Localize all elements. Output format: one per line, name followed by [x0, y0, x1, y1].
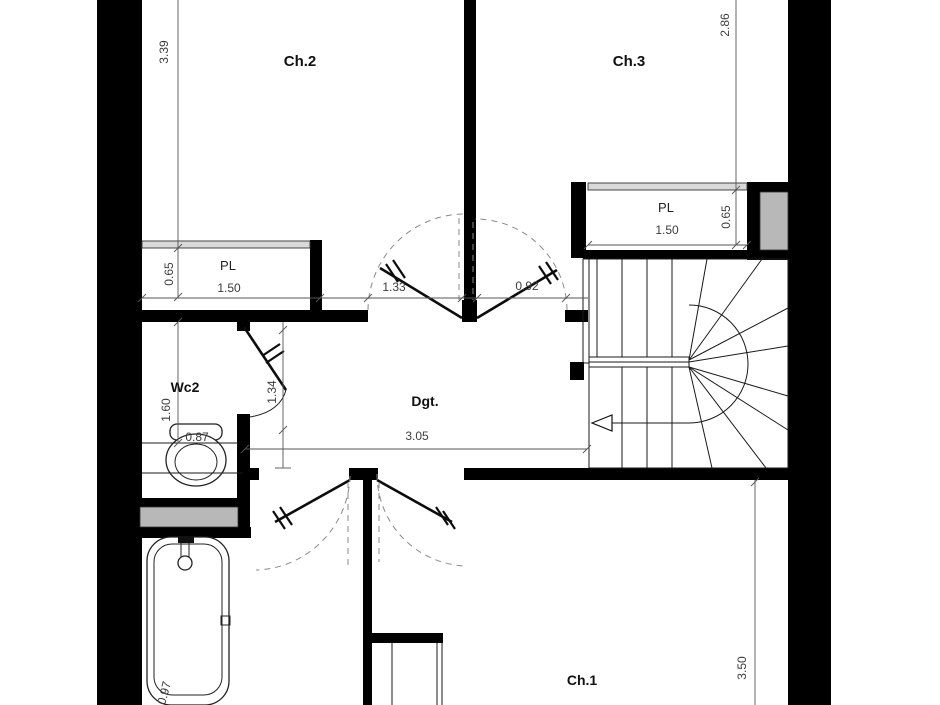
bath-vanity-counter	[140, 507, 238, 527]
floor-plan-svg: Ch.2 Ch.3 Wc2 Dgt. Ch.1 PL PL 3.39 2.86 …	[0, 0, 940, 705]
wall-pl-left-post	[310, 240, 322, 322]
dim-pl-right-width: 1.50	[655, 223, 679, 237]
pl-left-front-panel	[142, 241, 310, 248]
wall-ch1-north	[464, 468, 788, 480]
door-ch2	[368, 214, 465, 318]
label-pl-left: PL	[220, 258, 236, 273]
dim-pl-left-width: 1.50	[217, 281, 241, 295]
dim-ch1-height: 3.50	[735, 656, 749, 680]
wall-right-exterior	[788, 0, 831, 705]
label-ch3: Ch.3	[613, 53, 646, 70]
staircase	[583, 259, 788, 468]
stair-direction-arrow	[592, 415, 612, 431]
door-swing-arc	[256, 476, 350, 570]
stair-winder	[689, 346, 788, 362]
dim-wc2-width: 0.87	[185, 430, 209, 444]
bathtub-faucet-base	[178, 536, 194, 543]
wall-stair-west-block	[570, 362, 584, 380]
dim-pl-left-depth: 0.65	[162, 262, 176, 286]
wall-hall-north	[142, 310, 368, 322]
dim-hall-width: 3.05	[405, 429, 429, 443]
pl-right-front-panel	[588, 183, 747, 190]
stair-winder	[689, 367, 788, 396]
stair-winder	[689, 259, 762, 360]
wall-top-door-post	[462, 300, 477, 322]
wall-bath-ch1-divider	[363, 478, 372, 705]
door-leaf	[477, 270, 557, 318]
wall-shaft-top	[755, 182, 788, 192]
stair-winder	[689, 308, 788, 360]
wall-ch2-ch3-divider	[464, 0, 476, 310]
stair-winder	[689, 367, 788, 430]
dim-ch3-height: 2.86	[718, 13, 732, 37]
label-wc2: Wc2	[171, 379, 200, 395]
floor-plan-page: Ch.2 Ch.3 Wc2 Dgt. Ch.1 PL PL 3.39 2.86 …	[0, 0, 940, 705]
dim-door-ch2: 1.33	[382, 280, 406, 294]
door-ch1	[377, 474, 466, 566]
dim-pl-right-depth: 0.65	[719, 205, 733, 229]
dimension-lines	[138, 0, 759, 705]
door-swing-arc	[475, 219, 567, 310]
wall-vanity-top	[140, 498, 244, 507]
bathtub-drain	[178, 556, 192, 570]
dim-wc2-length: 1.60	[159, 398, 173, 422]
label-pl-right: PL	[658, 200, 674, 215]
dimension-labels: 3.39 2.86 0.65 1.50 1.33 0.92 1.34 1.60 …	[154, 13, 749, 705]
wall-hall-pl-right	[571, 182, 586, 258]
door-ch3	[473, 219, 567, 318]
wall-wc2-door-post	[237, 318, 250, 331]
dim-wc2-door: 1.34	[265, 380, 279, 404]
dim-ch2-height: 3.39	[157, 40, 171, 64]
wall-hall-north-stub	[565, 310, 588, 322]
room-labels: Ch.2 Ch.3 Wc2 Dgt. Ch.1 PL PL	[171, 53, 674, 688]
wall-left-exterior	[97, 0, 142, 705]
duct-shaft	[760, 192, 788, 250]
wall-pl-right-post	[747, 182, 760, 260]
dim-door-ch3: 0.92	[515, 279, 539, 293]
door-swing-arc	[368, 214, 465, 310]
label-ch1: Ch.1	[567, 672, 598, 688]
label-ch2: Ch.2	[284, 53, 317, 70]
label-dgt: Dgt.	[411, 393, 438, 409]
wall-wc2-east	[237, 414, 250, 538]
wall-ch1-closet-stub	[371, 633, 443, 643]
ch1-closet	[392, 643, 442, 705]
door-bathroom	[256, 476, 350, 570]
stair-winder	[689, 259, 707, 360]
